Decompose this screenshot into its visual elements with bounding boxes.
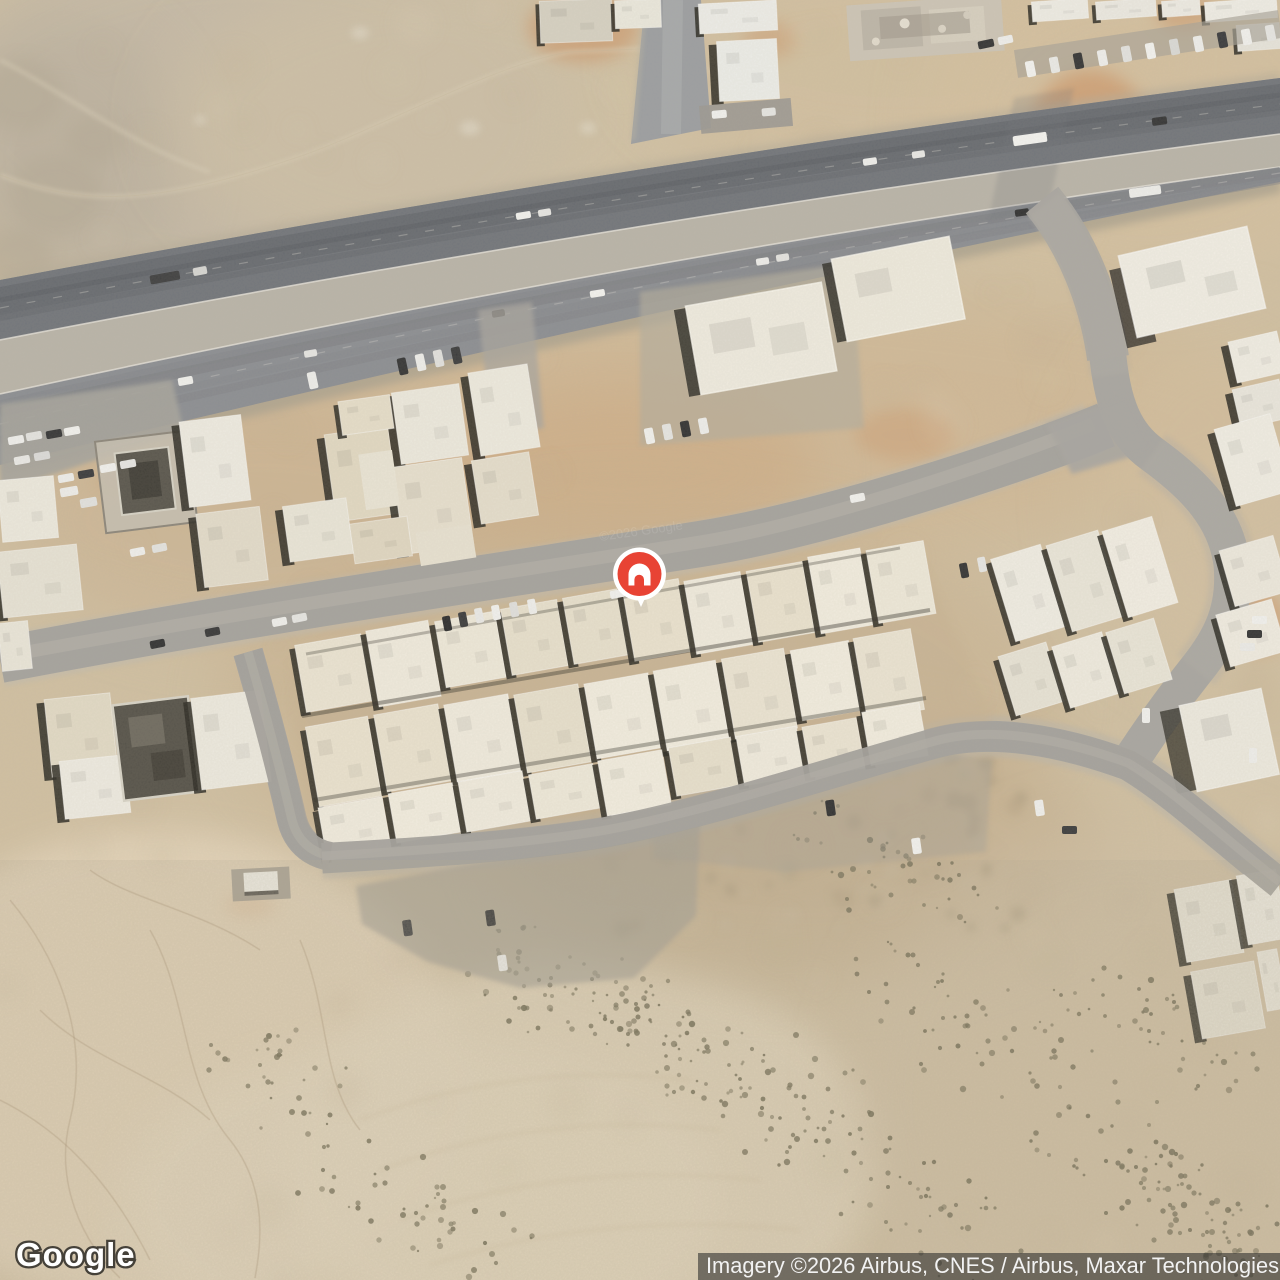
svg-text:Google: Google bbox=[16, 1236, 136, 1273]
svg-text:Imagery ©2026 Airbus, CNES / A: Imagery ©2026 Airbus, CNES / Airbus, Max… bbox=[706, 1253, 1279, 1278]
